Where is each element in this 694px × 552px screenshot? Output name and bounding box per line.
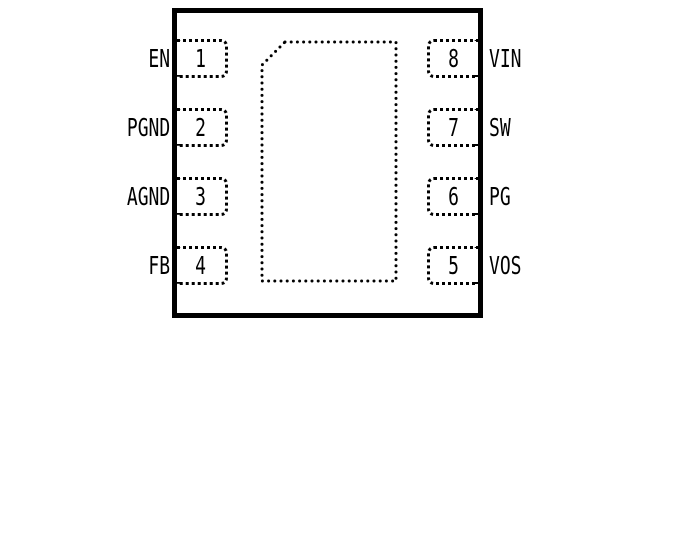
pinout-diagram: 1 2 3 4 8 7 6 5 EN PGND AGND FB VIN SW P… [0, 0, 694, 552]
pin-label-vin: VIN [489, 39, 534, 78]
pin-number: 8 [449, 46, 460, 71]
pin-number: 7 [449, 115, 460, 140]
pin-box-3: 3 [177, 177, 228, 216]
pin-number: 2 [196, 115, 207, 140]
pin-box-2: 2 [177, 108, 228, 147]
pin-box-8: 8 [427, 39, 478, 78]
pin-label-pgnd: PGND [110, 108, 170, 147]
pin-number: 6 [449, 184, 460, 209]
pin-label-pg: PG [489, 177, 519, 216]
pin-box-5: 5 [427, 246, 478, 285]
pin-label-en: EN [140, 39, 170, 78]
pin-number: 3 [196, 184, 207, 209]
pin-label-vos: VOS [489, 246, 534, 285]
pin-box-7: 7 [427, 108, 478, 147]
pin-box-4: 4 [177, 246, 228, 285]
thermal-pad-border [262, 42, 396, 281]
pin-label-sw: SW [489, 108, 519, 147]
pin-number: 5 [449, 253, 460, 278]
thermal-pad [258, 38, 400, 285]
pin-label-agnd: AGND [110, 177, 170, 216]
pin-number: 4 [196, 253, 207, 278]
pin-box-6: 6 [427, 177, 478, 216]
pin-number: 1 [196, 46, 207, 71]
pin-label-fb: FB [140, 246, 170, 285]
pin-box-1: 1 [177, 39, 228, 78]
